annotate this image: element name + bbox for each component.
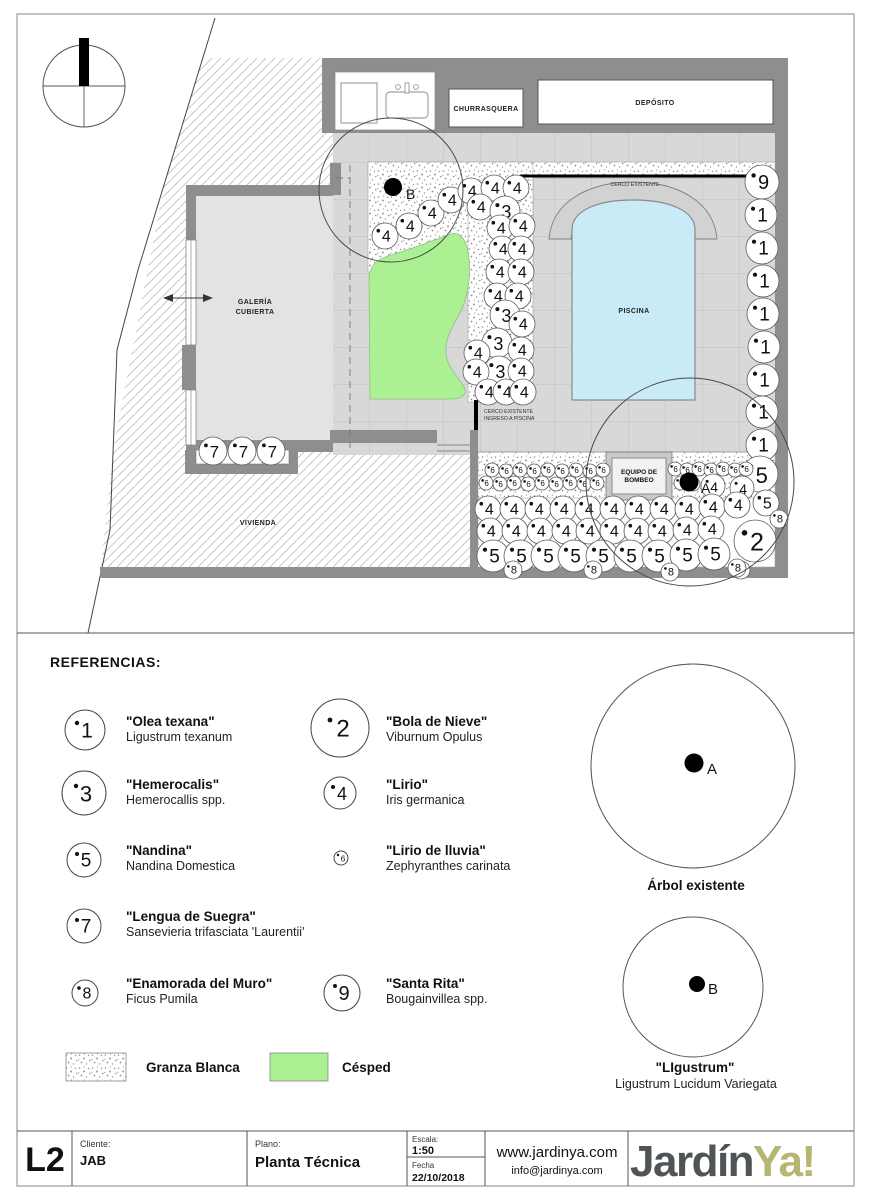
plant-circle-6: 6 [485, 463, 499, 477]
svg-text:3: 3 [493, 334, 503, 354]
legend-item-8: 8 "Enamorada del Muro" Ficus Pumila [72, 976, 272, 1006]
svg-text:7: 7 [81, 917, 92, 938]
svg-text:4: 4 [519, 317, 528, 334]
svg-text:4: 4 [406, 219, 415, 236]
svg-text:4: 4 [477, 200, 486, 217]
svg-text:8: 8 [777, 514, 783, 526]
plant-circle-1: 1 [745, 199, 777, 231]
deposito-label: DEPÓSITO [635, 98, 674, 107]
svg-text:4: 4 [448, 193, 457, 210]
fecha-value: 22/10/2018 [412, 1172, 465, 1184]
svg-text:"Santa Rita": "Santa Rita" [386, 976, 465, 991]
svg-text:6: 6 [673, 465, 678, 474]
svg-text:7: 7 [239, 443, 248, 462]
svg-text:1: 1 [757, 206, 768, 227]
svg-text:1: 1 [758, 436, 769, 457]
plan-sheet: CHURRASQUERA DEPÓSITO PISCINA CERCO EXIS… [0, 0, 871, 1200]
svg-text:5: 5 [489, 547, 500, 568]
plant-circle-6: 6 [541, 463, 555, 477]
svg-text:"Bola de Nieve": "Bola de Nieve" [386, 714, 487, 729]
plant-circle-4: 4 [502, 518, 528, 544]
plant-circle-6: 6 [739, 462, 753, 476]
svg-text:4: 4 [428, 206, 437, 223]
legend-item-7: 7 "Lengua de Suegra" Sansevieria trifasc… [67, 909, 304, 943]
plan-drawing: CHURRASQUERA DEPÓSITO PISCINA CERCO EXIS… [0, 0, 871, 1200]
svg-text:2: 2 [750, 529, 764, 557]
plant-circle-6: 6 [527, 464, 541, 478]
svg-text:Ligustrum texanum: Ligustrum texanum [126, 730, 232, 744]
svg-text:Hemerocallis spp.: Hemerocallis spp. [126, 793, 225, 807]
svg-text:4: 4 [473, 365, 482, 382]
plant-circle-7: 7 [228, 437, 256, 465]
svg-text:Ficus Pumila: Ficus Pumila [126, 992, 198, 1006]
svg-text:6: 6 [540, 479, 545, 488]
svg-text:A: A [707, 761, 717, 778]
plant-circle-6: 6 [590, 476, 604, 490]
svg-text:5: 5 [654, 547, 665, 568]
svg-text:Iris germanica: Iris germanica [386, 793, 465, 807]
svg-text:1: 1 [758, 239, 769, 260]
vivienda-label: VIVIENDA [240, 520, 276, 527]
svg-text:6: 6 [554, 480, 559, 489]
plant-circle-8: 8 [661, 563, 679, 581]
svg-text:5: 5 [543, 547, 554, 568]
svg-text:4: 4 [491, 181, 500, 198]
cliente-value: JAB [80, 1153, 106, 1168]
plant-circle-2: 2 [734, 520, 776, 562]
referencias-section: REFERENCIAS: 1 "Olea texana" Ligustrum t… [50, 654, 795, 1091]
svg-text:4: 4 [635, 502, 644, 519]
plant-circle-7: 7 [199, 437, 227, 465]
tree-a-letter: A [701, 480, 711, 496]
svg-text:1: 1 [760, 338, 771, 359]
plant-circle-6: 6 [555, 464, 569, 478]
svg-text:4: 4 [497, 221, 506, 238]
plant-circle-1: 1 [748, 331, 780, 363]
escala-label: Escala: [412, 1135, 438, 1144]
svg-text:6: 6 [512, 479, 517, 488]
svg-text:4: 4 [337, 784, 347, 804]
svg-text:"Nandina": "Nandina" [126, 843, 192, 858]
plant-circle-6: 6 [535, 476, 549, 490]
north-symbol [43, 38, 125, 127]
svg-text:6: 6 [697, 465, 702, 474]
svg-text:4: 4 [485, 502, 494, 519]
plant-circle-1: 1 [746, 396, 778, 428]
churrasquera-label: CHURRASQUERA [453, 106, 518, 113]
svg-text:4: 4 [710, 479, 718, 495]
plano-value: Planta Técnica [255, 1154, 361, 1171]
sheet-number: L2 [25, 1141, 65, 1179]
svg-text:4: 4 [709, 500, 718, 517]
equipo-label-2: BOMBEO [624, 477, 653, 484]
galeria-floor [196, 196, 333, 440]
plant-circle-1: 1 [746, 232, 778, 264]
svg-text:6: 6 [498, 480, 503, 489]
swatch-granza-blanca: Granza Blanca [66, 1053, 240, 1081]
svg-text:6: 6 [721, 465, 726, 474]
galeria-label-2: CUBIERTA [236, 309, 275, 316]
plant-circle-5: 5 [698, 538, 730, 570]
svg-text:4: 4 [485, 385, 494, 402]
svg-text:6: 6 [490, 466, 495, 475]
equipo-bombeo: EQUIPO DE BOMBEO [606, 452, 672, 500]
tree-a-caption: Árbol existente [647, 878, 745, 893]
plant-circle-4: 4 [509, 213, 535, 239]
counter-box [341, 83, 377, 123]
svg-text:6: 6 [518, 466, 523, 475]
svg-text:8: 8 [511, 565, 517, 577]
title-block: L2 Cliente: JAB Plano: Planta Técnica Es… [17, 1131, 854, 1186]
legend-item-5: 5 "Nandina" Nandina Domestica [67, 843, 235, 877]
tree-b-subcaption: Ligustrum Lucidum Variegata [615, 1077, 777, 1091]
svg-text:6: 6 [733, 466, 738, 475]
legend-item-1: 1 "Olea texana" Ligustrum texanum [65, 710, 232, 750]
legend-item-4: 4 "Lirio" Iris germanica [324, 777, 465, 809]
plant-circle-4: 4 [372, 223, 398, 249]
svg-text:6: 6 [595, 479, 600, 488]
cliente-label: Cliente: [80, 1139, 111, 1149]
svg-text:4: 4 [510, 502, 519, 519]
plant-circle-8: 8 [504, 561, 522, 579]
legend-tree-a: A Árbol existente [591, 664, 795, 893]
svg-text:4: 4 [734, 498, 743, 515]
svg-text:"Lengua de Suegra": "Lengua de Suegra" [126, 909, 256, 924]
svg-text:4: 4 [515, 289, 524, 306]
svg-text:1: 1 [758, 403, 769, 424]
svg-text:"Lirio de lluvia": "Lirio de lluvia" [386, 843, 486, 858]
plant-circle-1: 1 [747, 364, 779, 396]
email-address: info@jardinya.com [511, 1165, 602, 1177]
svg-text:4: 4 [520, 385, 529, 402]
svg-text:4: 4 [513, 181, 522, 198]
plant-circle-4: 4 [508, 259, 534, 285]
svg-text:4: 4 [537, 524, 546, 541]
plant-circle-6: 6 [521, 477, 535, 491]
svg-text:Bougainvillea spp.: Bougainvillea spp. [386, 992, 487, 1006]
svg-text:Césped: Césped [342, 1060, 391, 1075]
plant-circle-6: 6 [513, 463, 527, 477]
svg-text:5: 5 [710, 545, 721, 566]
svg-text:9: 9 [758, 172, 769, 194]
svg-text:4: 4 [685, 502, 694, 519]
svg-text:4: 4 [518, 242, 527, 259]
svg-text:4: 4 [512, 524, 521, 541]
plant-circle-6: 6 [577, 477, 591, 491]
svg-text:4: 4 [610, 524, 619, 541]
svg-text:4: 4 [660, 502, 669, 519]
plant-circle-4: 4 [396, 213, 422, 239]
svg-text:4: 4 [487, 524, 496, 541]
svg-text:6: 6 [588, 467, 593, 476]
plant-circle-4: 4 [508, 236, 534, 262]
plant-circle-6: 6 [479, 476, 493, 490]
plant-circle-6: 6 [569, 463, 583, 477]
svg-text:8: 8 [591, 565, 597, 577]
plant-circle-6: 6 [596, 463, 610, 477]
svg-text:4: 4 [634, 524, 643, 541]
svg-text:4: 4 [382, 229, 391, 246]
legend-item-6: 6 "Lirio de lluvia" Zephyranthes carinat… [334, 843, 510, 873]
piscina-label: PISCINA [618, 308, 649, 315]
svg-text:8: 8 [83, 986, 92, 1003]
svg-text:"Enamorada del Muro": "Enamorada del Muro" [126, 976, 272, 991]
svg-text:Sansevieria trifasciata 'Laure: Sansevieria trifasciata 'Laurentii' [126, 925, 304, 939]
svg-text:4: 4 [610, 502, 619, 519]
svg-text:6: 6 [568, 479, 573, 488]
svg-text:Nandina Domestica: Nandina Domestica [126, 859, 235, 873]
escala-value: 1:50 [412, 1145, 434, 1157]
svg-text:9: 9 [338, 983, 349, 1005]
svg-text:4: 4 [708, 522, 717, 539]
svg-text:6: 6 [504, 467, 509, 476]
svg-text:1: 1 [759, 371, 770, 392]
svg-text:4: 4 [518, 343, 527, 360]
svg-text:7: 7 [210, 443, 219, 462]
svg-text:4: 4 [586, 524, 595, 541]
svg-text:5: 5 [756, 463, 768, 488]
svg-text:"Lirio": "Lirio" [386, 777, 428, 792]
legend-tree-b: B "LIgustrum" Ligustrum Lucidum Variegat… [615, 917, 777, 1091]
plant-circle-4: 4 [509, 311, 535, 337]
svg-text:3: 3 [80, 782, 92, 807]
plant-circle-4: 4 [510, 379, 536, 405]
plant-circle-9: 9 [745, 165, 779, 199]
plano-label: Plano: [255, 1139, 281, 1149]
svg-text:5: 5 [682, 546, 693, 567]
legend-item-2: 2 "Bola de Nieve" Viburnum Opulus [311, 699, 487, 757]
pool: PISCINA [549, 182, 717, 400]
svg-text:4: 4 [560, 502, 569, 519]
svg-text:1: 1 [759, 272, 770, 293]
equipo-label-1: EQUIPO DE [621, 469, 658, 476]
plant-circle-6: 6 [499, 464, 513, 478]
svg-text:4: 4 [499, 242, 508, 259]
svg-text:6: 6 [574, 466, 579, 475]
svg-text:"Olea texana": "Olea texana" [126, 714, 215, 729]
website-url: www.jardinya.com [496, 1144, 618, 1161]
ingreso-label-2: INGRESO A PISCINA [484, 416, 535, 422]
plant-circle-6: 6 [493, 477, 507, 491]
svg-text:6: 6 [341, 855, 346, 864]
legend-item-3: 3 "Hemerocalis" Hemerocallis spp. [62, 771, 225, 815]
svg-text:B: B [708, 981, 718, 998]
plant-circle-7: 7 [257, 437, 285, 465]
tree-b-letter: B [406, 186, 415, 202]
svg-text:4: 4 [496, 265, 505, 282]
tree-b-caption: "LIgustrum" [656, 1060, 735, 1075]
svg-text:4: 4 [518, 364, 527, 381]
svg-text:7: 7 [268, 443, 277, 462]
svg-text:4: 4 [519, 219, 528, 236]
plant-circle-6: 6 [549, 477, 563, 491]
pool-water [572, 200, 695, 400]
swatch-cesped: Césped [270, 1053, 391, 1081]
plant-circle-1: 1 [747, 265, 779, 297]
ingreso-label-1: CERCO EXISTENTE [484, 409, 534, 415]
top-wall [322, 58, 788, 72]
svg-text:Viburnum Opulus: Viburnum Opulus [386, 730, 482, 744]
svg-text:6: 6 [560, 467, 565, 476]
svg-text:5: 5 [626, 547, 637, 568]
sink [386, 92, 428, 118]
svg-text:5: 5 [763, 496, 772, 513]
svg-text:5: 5 [570, 547, 581, 568]
galeria-label-1: GALERÍA [238, 297, 272, 306]
svg-text:8: 8 [668, 567, 674, 579]
svg-text:6: 6 [484, 479, 489, 488]
legend-item-9: 9 "Santa Rita" Bougainvillea spp. [324, 975, 487, 1011]
jardinya-logo: JardínYa! [630, 1137, 815, 1186]
svg-text:"Hemerocalis": "Hemerocalis" [126, 777, 219, 792]
cerco-label: CERCO EXISTENTE [610, 182, 660, 188]
plant-circle-6: 6 [563, 476, 577, 490]
svg-text:4: 4 [683, 523, 692, 540]
svg-text:5: 5 [81, 851, 92, 872]
plant-circle-8: 8 [584, 561, 602, 579]
fecha-label: Fecha [412, 1161, 435, 1170]
svg-text:6: 6 [532, 467, 537, 476]
svg-text:1: 1 [759, 305, 770, 326]
referencias-title: REFERENCIAS: [50, 654, 161, 670]
svg-text:4: 4 [658, 524, 667, 541]
plant-circle-4: 4 [467, 194, 493, 220]
north-needle [79, 38, 89, 86]
svg-text:4: 4 [535, 502, 544, 519]
svg-text:6: 6 [744, 465, 749, 474]
plant-circle-6: 6 [507, 476, 521, 490]
svg-text:6: 6 [601, 466, 606, 475]
svg-text:Granza Blanca: Granza Blanca [146, 1060, 240, 1075]
plant-circle-1: 1 [747, 298, 779, 330]
svg-text:Zephyranthes carinata: Zephyranthes carinata [386, 859, 510, 873]
plant-circle-4: 4 [724, 492, 750, 518]
svg-text:6: 6 [546, 466, 551, 475]
svg-text:6: 6 [526, 480, 531, 489]
svg-text:4: 4 [562, 524, 571, 541]
plant-circle-8: 8 [770, 510, 788, 528]
svg-text:1: 1 [81, 720, 93, 743]
svg-text:4: 4 [518, 265, 527, 282]
step [330, 430, 437, 443]
plant-circle-6: 6 [583, 464, 597, 478]
lawn [369, 233, 470, 399]
svg-text:2: 2 [336, 716, 349, 743]
